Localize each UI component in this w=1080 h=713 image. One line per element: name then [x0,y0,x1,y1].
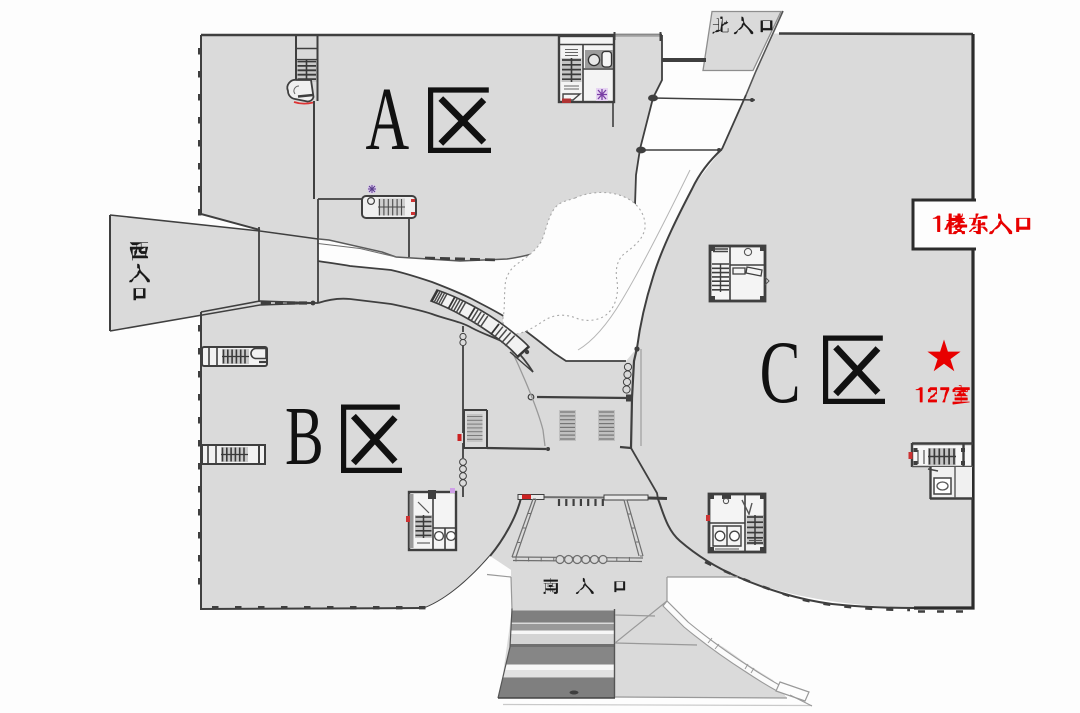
svg-text:A: A [366,69,410,169]
svg-text:C: C [760,323,801,422]
svg-text:B: B [285,390,324,483]
